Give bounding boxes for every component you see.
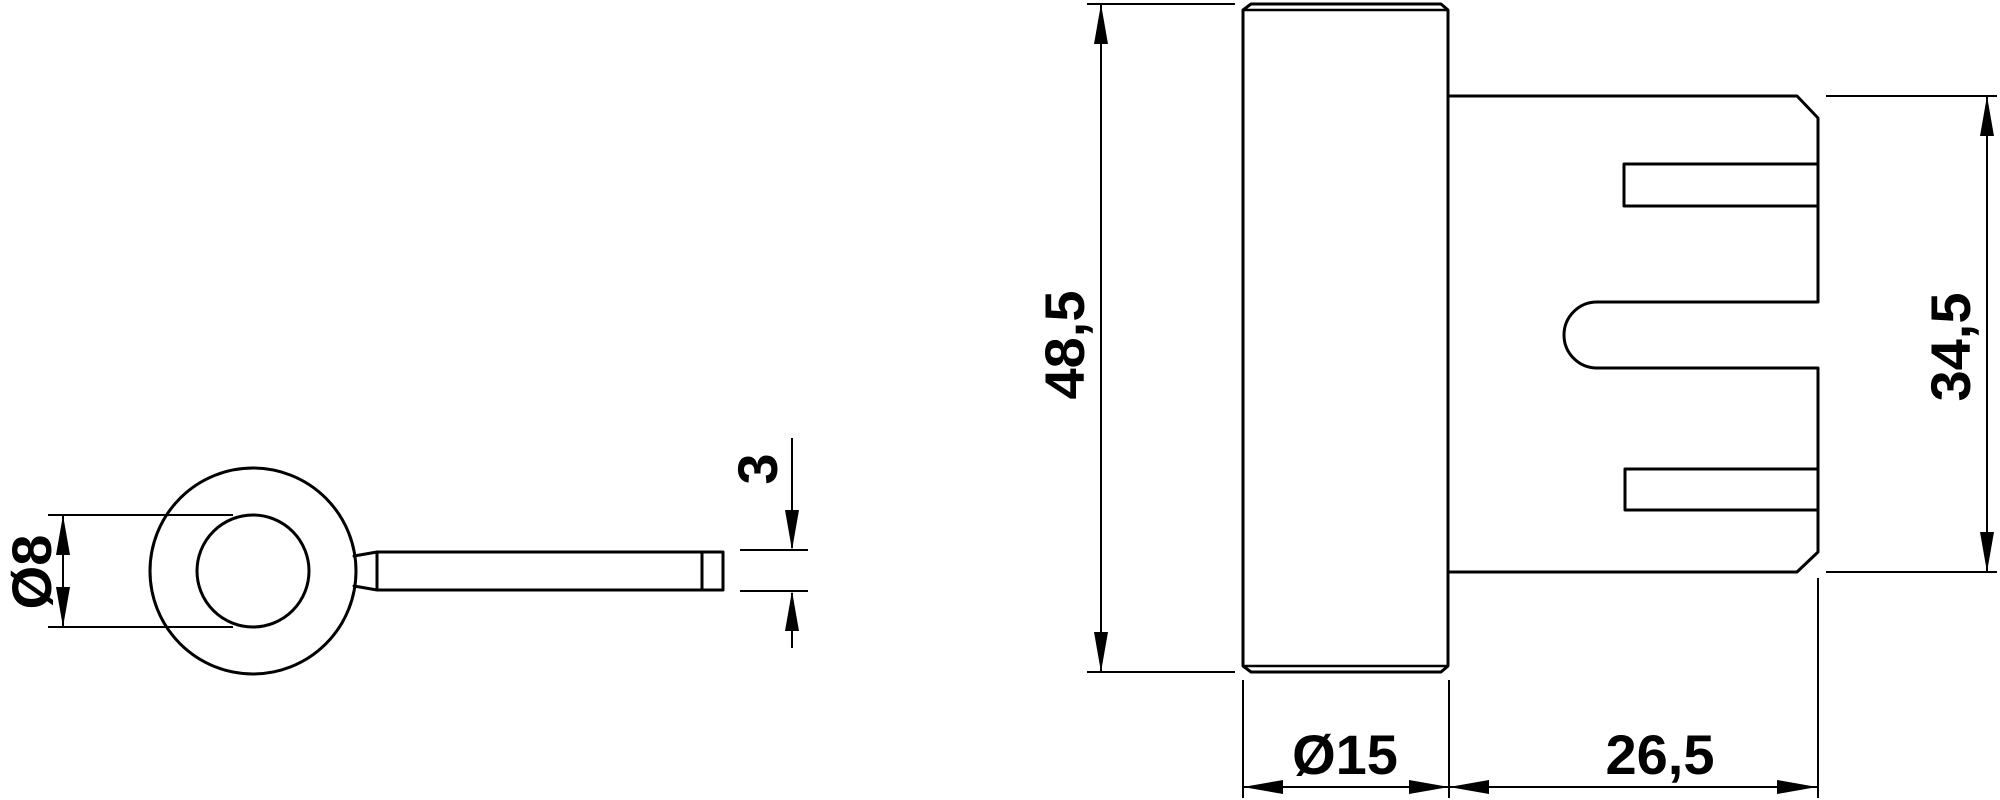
dim-ring-diameter-lines: [48, 515, 233, 627]
dim-housing-height: 34,5: [1826, 96, 1997, 572]
arrow-left-icon: [1243, 780, 1283, 794]
arrow-down-icon: [1094, 632, 1108, 672]
dim-housing-length: 26,5: [1449, 578, 1818, 798]
arrow-up-icon: [785, 591, 799, 631]
arrow-right-icon: [1409, 780, 1449, 794]
arrow-up-icon: [1094, 4, 1108, 44]
dim-overall-height: 48,5: [1033, 4, 1235, 672]
dim-cylinder-diameter: Ø15: [1243, 680, 1449, 798]
lever-outline: [354, 552, 723, 590]
dim-housing-height-label: 34,5: [1919, 293, 1982, 402]
technical-drawing: Ø8 3 48,5 Ø15 26,5: [0, 0, 2000, 800]
ring-outer-circle: [150, 468, 356, 674]
arrow-up-icon: [1980, 96, 1994, 136]
arrow-down-icon: [785, 510, 799, 550]
arrow-down-icon: [1980, 532, 1994, 572]
arrow-left-icon: [1449, 780, 1489, 794]
dim-lever-thickness-label: 3: [726, 453, 789, 484]
ring-inner-circle: [197, 515, 309, 627]
cylinder-outline: [1243, 4, 1448, 672]
housing-u-slot: [1564, 302, 1817, 368]
dim-overall-height-label: 48,5: [1033, 291, 1096, 400]
housing-top-slot: [1624, 164, 1817, 206]
dim-overall-height-lines: [1087, 4, 1235, 672]
end-view: [150, 468, 723, 674]
dim-ring-diameter-label: Ø8: [0, 535, 63, 610]
arrow-right-icon: [1777, 780, 1817, 794]
cylinder-chamfer-edges: [1243, 10, 1448, 666]
dim-cylinder-diameter-label: Ø15: [1292, 723, 1398, 786]
drawing-canvas: Ø8 3 48,5 Ø15 26,5: [0, 0, 2000, 800]
dim-lever-thickness: 3: [726, 438, 808, 648]
side-view: [1243, 4, 1818, 672]
dim-housing-length-label: 26,5: [1606, 723, 1715, 786]
housing-outline: [1449, 96, 1818, 572]
housing-bottom-slot: [1625, 469, 1817, 510]
